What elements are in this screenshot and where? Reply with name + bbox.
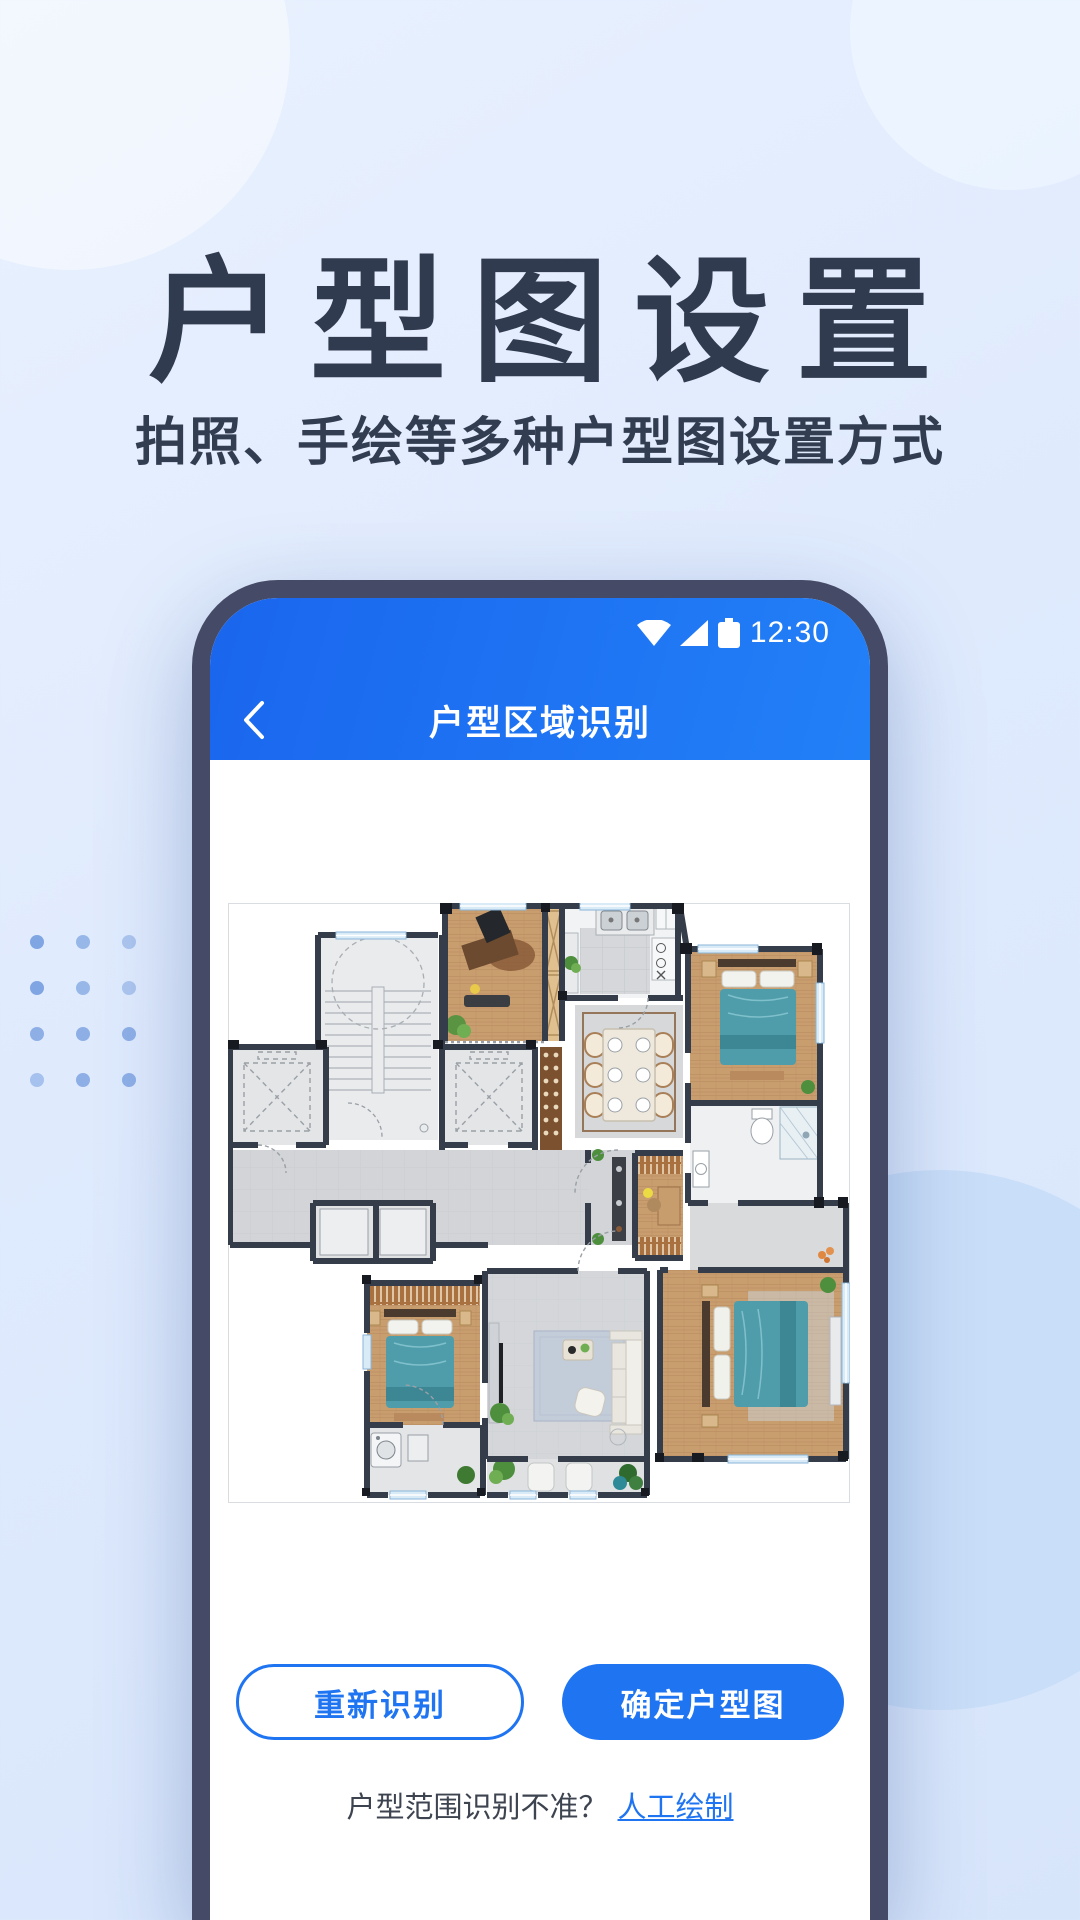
back-button[interactable]	[226, 696, 282, 744]
manual-draw-link[interactable]: 人工绘制	[618, 1792, 734, 1824]
chevron-left-icon	[242, 700, 266, 740]
phone-screen: 12:30 户型区域识别	[210, 598, 870, 1920]
floor-plan-drawing	[228, 903, 850, 1503]
battery-icon	[717, 618, 741, 648]
decorative-dot-grid	[30, 935, 136, 1087]
nav-title: 户型区域识别	[429, 695, 651, 746]
phone-mockup: 12:30 户型区域识别	[192, 580, 888, 1920]
decorative-circle-top-right	[850, 0, 1080, 190]
cellular-signal-icon	[680, 620, 708, 646]
footer-question: 户型范围识别不准？	[346, 1792, 607, 1824]
action-buttons: 重新识别 确定户型图	[236, 1664, 844, 1740]
confirm-floorplan-button[interactable]: 确定户型图	[562, 1664, 844, 1740]
page-title: 户型图设置	[0, 212, 1080, 409]
app-header: 12:30 户型区域识别	[210, 598, 870, 760]
floor-plan-image	[228, 903, 850, 1503]
status-bar: 12:30	[637, 616, 830, 650]
wifi-icon	[637, 620, 671, 646]
re-recognize-button[interactable]: 重新识别	[236, 1664, 524, 1740]
footer-note: 户型范围识别不准？人工绘制	[210, 1784, 870, 1826]
status-time: 12:30	[750, 616, 830, 650]
nav-bar: 户型区域识别	[210, 692, 870, 748]
page-subtitle: 拍照、手绘等多种户型图设置方式	[0, 400, 1080, 475]
